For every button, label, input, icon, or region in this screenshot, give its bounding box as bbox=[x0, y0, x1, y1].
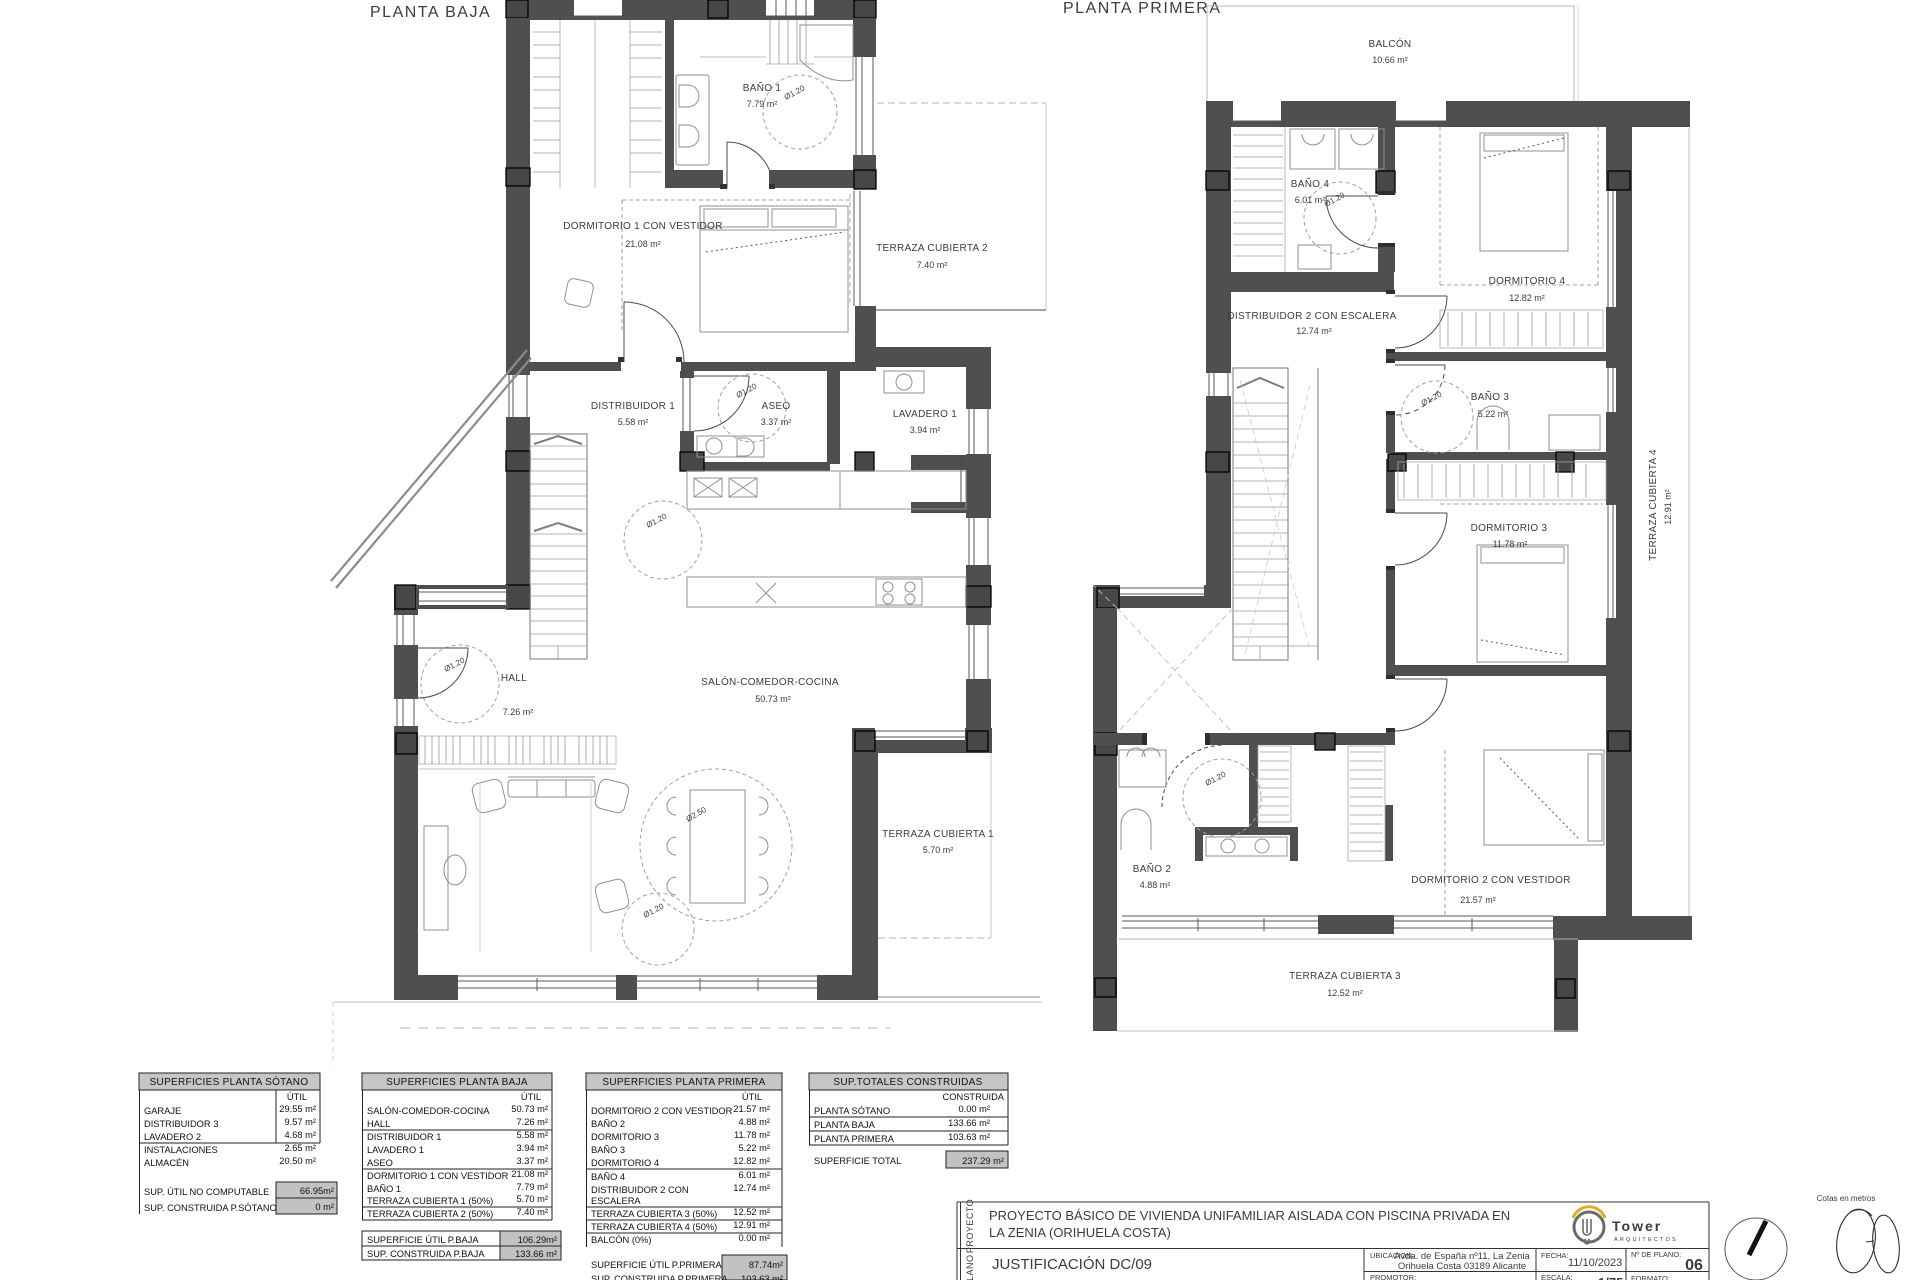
svg-text:LAVADERO 2: LAVADERO 2 bbox=[144, 1132, 201, 1142]
svg-text:21.57 m²: 21.57 m² bbox=[1460, 895, 1496, 905]
svg-text:TERRAZA CUBIERTA 2 (50%): TERRAZA CUBIERTA 2 (50%) bbox=[367, 1209, 493, 1219]
svg-text:Cotas en metros: Cotas en metros bbox=[1817, 1194, 1876, 1203]
svg-text:SUP. CONSTRUIDA P.PRIMERA: SUP. CONSTRUIDA P.PRIMERA bbox=[591, 1274, 728, 1280]
svg-text:1/75: 1/75 bbox=[1598, 1275, 1623, 1280]
svg-text:CONSTRUIDA: CONSTRUIDA bbox=[943, 1092, 1005, 1102]
svg-text:50.73 m²: 50.73 m² bbox=[755, 694, 791, 704]
svg-text:237.29 m²: 237.29 m² bbox=[962, 1156, 1004, 1166]
svg-text:5.58 m²: 5.58 m² bbox=[516, 1130, 548, 1140]
svg-text:BAÑO 2: BAÑO 2 bbox=[1133, 862, 1172, 875]
svg-text:0.00 m²: 0.00 m² bbox=[958, 1104, 990, 1114]
svg-text:21.08 m²: 21.08 m² bbox=[511, 1169, 548, 1179]
svg-text:3.37 m²: 3.37 m² bbox=[761, 417, 792, 427]
svg-text:HALL: HALL bbox=[367, 1119, 390, 1129]
svg-text:66.95m²: 66.95m² bbox=[300, 1186, 334, 1196]
svg-text:TERRAZA CUBIERTA 3: TERRAZA CUBIERTA 3 bbox=[1289, 971, 1401, 982]
svg-text:BAÑO 2: BAÑO 2 bbox=[591, 1119, 625, 1129]
svg-text:DORMITORIO 3: DORMITORIO 3 bbox=[1471, 523, 1548, 534]
svg-text:4.68 m²: 4.68 m² bbox=[284, 1130, 316, 1140]
svg-text:DORMITORIO 3: DORMITORIO 3 bbox=[591, 1132, 659, 1142]
svg-text:12.82 m²: 12.82 m² bbox=[1509, 293, 1545, 303]
svg-text:12.74 m²: 12.74 m² bbox=[1296, 326, 1332, 336]
svg-text:DISTRIBUIDOR 2 CON: DISTRIBUIDOR 2 CON bbox=[591, 1185, 689, 1195]
svg-text:INSTALACIONES: INSTALACIONES bbox=[144, 1145, 218, 1155]
svg-text:TERRAZA CUBIERTA 3 (50%): TERRAZA CUBIERTA 3 (50%) bbox=[591, 1209, 717, 1219]
svg-text:106.29m²: 106.29m² bbox=[518, 1235, 557, 1245]
svg-text:103.63 m²: 103.63 m² bbox=[948, 1132, 990, 1142]
svg-text:PLANO: PLANO bbox=[965, 1254, 975, 1280]
svg-text:ARQUITECTOS: ARQUITECTOS bbox=[1614, 1237, 1678, 1243]
svg-text:SUPERFICIES PLANTA PRIMERA: SUPERFICIES PLANTA PRIMERA bbox=[602, 1077, 765, 1088]
svg-text:PLANTA PRIMERA: PLANTA PRIMERA bbox=[814, 1134, 895, 1144]
svg-text:BAÑO 1: BAÑO 1 bbox=[743, 81, 782, 94]
svg-text:BAÑO 1: BAÑO 1 bbox=[367, 1184, 401, 1194]
svg-text:12.74 m²: 12.74 m² bbox=[733, 1183, 770, 1193]
svg-text:3.37 m²: 3.37 m² bbox=[516, 1156, 548, 1166]
svg-text:12.52 m²: 12.52 m² bbox=[1327, 988, 1363, 998]
svg-text:FORMATO:: FORMATO: bbox=[1631, 1274, 1670, 1280]
svg-text:DORMITORIO 1 CON VESTIDOR: DORMITORIO 1 CON VESTIDOR bbox=[563, 221, 723, 232]
svg-text:ÚTIL: ÚTIL bbox=[287, 1092, 307, 1102]
svg-text:BALCÓN (0%): BALCÓN (0%) bbox=[591, 1235, 651, 1245]
svg-text:BAÑO 4: BAÑO 4 bbox=[1291, 177, 1330, 190]
svg-text:Nº DE PLANO:: Nº DE PLANO: bbox=[1631, 1250, 1681, 1259]
svg-text:3.94 m²: 3.94 m² bbox=[910, 425, 941, 435]
svg-text:GARAJE: GARAJE bbox=[144, 1106, 181, 1116]
svg-text:ESCALA:: ESCALA: bbox=[1541, 1273, 1573, 1280]
svg-text:SUPERFICIES PLANTA BAJA: SUPERFICIES PLANTA BAJA bbox=[386, 1077, 528, 1088]
svg-text:0 m²: 0 m² bbox=[315, 1202, 334, 1212]
svg-text:TERRAZA CUBIERTA 1: TERRAZA CUBIERTA 1 bbox=[882, 829, 994, 840]
svg-text:11/10/2023: 11/10/2023 bbox=[1568, 1257, 1622, 1269]
svg-text:JUSTIFICACIÓN DC/09: JUSTIFICACIÓN DC/09 bbox=[992, 1256, 1152, 1273]
svg-text:103.63 m²: 103.63 m² bbox=[741, 1274, 783, 1280]
svg-text:HALL: HALL bbox=[501, 673, 527, 684]
svg-text:12.91 m²: 12.91 m² bbox=[1663, 489, 1673, 525]
svg-text:Orihuela Costa 03189 Alicante: Orihuela Costa 03189 Alicante bbox=[1398, 1261, 1526, 1272]
svg-text:29.55 m²: 29.55 m² bbox=[279, 1104, 316, 1114]
svg-text:133.66 m²: 133.66 m² bbox=[515, 1249, 557, 1259]
svg-text:21.08 m²: 21.08 m² bbox=[625, 239, 661, 249]
svg-text:21.57 m²: 21.57 m² bbox=[733, 1104, 770, 1114]
svg-text:5.70 m²: 5.70 m² bbox=[923, 845, 954, 855]
svg-text:7.79 m²: 7.79 m² bbox=[516, 1182, 548, 1192]
svg-text:SALÓN-COMEDOR-COCINA: SALÓN-COMEDOR-COCINA bbox=[367, 1106, 490, 1116]
svg-text:ASEO: ASEO bbox=[762, 401, 791, 412]
svg-text:BAÑO 4: BAÑO 4 bbox=[591, 1172, 625, 1182]
svg-text:DISTRIBUIDOR 2 CON ESCALERA: DISTRIBUIDOR 2 CON ESCALERA bbox=[1227, 311, 1396, 322]
svg-text:PLANTA BAJA: PLANTA BAJA bbox=[814, 1120, 876, 1130]
svg-text:ESCALERA: ESCALERA bbox=[591, 1196, 641, 1206]
svg-text:133.66 m²: 133.66 m² bbox=[948, 1118, 990, 1128]
svg-text:12.52 m²: 12.52 m² bbox=[733, 1207, 770, 1217]
svg-text:BAÑO 3: BAÑO 3 bbox=[591, 1145, 625, 1155]
svg-text:SUP. ÚTIL NO COMPUTABLE: SUP. ÚTIL NO COMPUTABLE bbox=[144, 1187, 269, 1197]
svg-text:3.94 m²: 3.94 m² bbox=[516, 1143, 548, 1153]
svg-text:PROYECTO: PROYECTO bbox=[965, 1199, 975, 1253]
svg-text:11.78 m²: 11.78 m² bbox=[1493, 539, 1528, 549]
svg-text:ASEO: ASEO bbox=[367, 1158, 393, 1168]
svg-text:DORMITORIO 2 CON VESTIDOR: DORMITORIO 2 CON VESTIDOR bbox=[591, 1106, 733, 1116]
svg-text:7.40 m²: 7.40 m² bbox=[516, 1207, 548, 1217]
svg-text:PLANTA SÓTANO: PLANTA SÓTANO bbox=[814, 1106, 890, 1116]
svg-text:7.40 m²: 7.40 m² bbox=[917, 260, 948, 270]
svg-text:7.26 m²: 7.26 m² bbox=[516, 1117, 548, 1127]
svg-text:BAÑO 3: BAÑO 3 bbox=[1471, 390, 1510, 403]
svg-text:PLANTA BAJA: PLANTA BAJA bbox=[370, 4, 491, 21]
svg-text:12.91 m²: 12.91 m² bbox=[733, 1220, 770, 1230]
svg-text:5.70 m²: 5.70 m² bbox=[516, 1194, 548, 1204]
svg-text:4.88 m²: 4.88 m² bbox=[1140, 880, 1171, 890]
svg-text:4.88 m²: 4.88 m² bbox=[738, 1117, 770, 1127]
svg-text:SUP. CONSTRUIDA P.SÓTANO: SUP. CONSTRUIDA P.SÓTANO bbox=[144, 1203, 277, 1213]
svg-text:DISTRIBUIDOR 1: DISTRIBUIDOR 1 bbox=[367, 1132, 441, 1142]
svg-text:20.50 m²: 20.50 m² bbox=[279, 1156, 316, 1166]
svg-text:SUPERFICIE ÚTIL P.BAJA: SUPERFICIE ÚTIL P.BAJA bbox=[367, 1235, 479, 1245]
svg-text:9.57 m²: 9.57 m² bbox=[284, 1117, 316, 1127]
svg-text:6.01 m²: 6.01 m² bbox=[738, 1170, 770, 1180]
svg-text:2.65 m²: 2.65 m² bbox=[284, 1143, 316, 1153]
svg-text:TERRAZA CUBIERTA 4 (50%): TERRAZA CUBIERTA 4 (50%) bbox=[591, 1222, 717, 1232]
svg-text:DISTRIBUIDOR 1: DISTRIBUIDOR 1 bbox=[591, 401, 675, 412]
svg-text:10.66 m²: 10.66 m² bbox=[1372, 55, 1408, 65]
svg-text:TERRAZA CUBIERTA 1 (50%): TERRAZA CUBIERTA 1 (50%) bbox=[367, 1196, 493, 1206]
svg-text:5.22 m²: 5.22 m² bbox=[1478, 409, 1509, 419]
svg-text:5.58 m²: 5.58 m² bbox=[618, 417, 649, 427]
svg-text:DISTRIBUIDOR 3: DISTRIBUIDOR 3 bbox=[144, 1119, 218, 1129]
svg-text:ALMACÉN: ALMACÉN bbox=[144, 1158, 189, 1168]
svg-text:PROMOTOR:: PROMOTOR: bbox=[1370, 1273, 1416, 1280]
svg-text:SUP. CONSTRUIDA P.BAJA: SUP. CONSTRUIDA P.BAJA bbox=[367, 1249, 485, 1259]
svg-text:LAVADERO 1: LAVADERO 1 bbox=[893, 409, 957, 420]
svg-text:BALCÓN: BALCÓN bbox=[1369, 37, 1412, 50]
svg-text:PLANTA PRIMERA: PLANTA PRIMERA bbox=[1063, 0, 1222, 17]
svg-text:DORMITORIO 4: DORMITORIO 4 bbox=[591, 1158, 659, 1168]
svg-text:SUPERFICIE ÚTIL P.PRIMERA: SUPERFICIE ÚTIL P.PRIMERA bbox=[591, 1260, 722, 1270]
svg-text:11.78 m²: 11.78 m² bbox=[734, 1130, 770, 1140]
svg-text:Tower: Tower bbox=[1612, 1218, 1662, 1234]
svg-text:TERRAZA CUBIERTA 4: TERRAZA CUBIERTA 4 bbox=[1648, 449, 1659, 561]
svg-text:7.79 m²: 7.79 m² bbox=[747, 99, 778, 109]
svg-text:SALÓN-COMEDOR-COCINA: SALÓN-COMEDOR-COCINA bbox=[701, 675, 839, 688]
svg-text:ÚTIL: ÚTIL bbox=[742, 1092, 762, 1102]
svg-text:DORMITORIO 2 CON VESTIDOR: DORMITORIO 2 CON VESTIDOR bbox=[1411, 875, 1571, 886]
svg-text:TERRAZA CUBIERTA 2: TERRAZA CUBIERTA 2 bbox=[876, 243, 988, 254]
svg-text:6.01 m²: 6.01 m² bbox=[1295, 195, 1326, 205]
svg-text:06: 06 bbox=[1685, 1257, 1703, 1274]
svg-text:FECHA:: FECHA: bbox=[1541, 1251, 1569, 1260]
svg-text:PROYECTO BÁSICO DE VIVIENDA UN: PROYECTO BÁSICO DE VIVIENDA UNIFAMILIAR … bbox=[989, 1208, 1510, 1223]
svg-text:SUP.TOTALES CONSTRUIDAS: SUP.TOTALES CONSTRUIDAS bbox=[833, 1077, 982, 1088]
svg-text:ÚTIL: ÚTIL bbox=[521, 1092, 541, 1102]
svg-text:SUPERFICIE TOTAL: SUPERFICIE TOTAL bbox=[814, 1156, 901, 1166]
svg-text:5.22 m²: 5.22 m² bbox=[738, 1143, 770, 1153]
svg-text:LA ZENIA (ORIHUELA COSTA): LA ZENIA (ORIHUELA COSTA) bbox=[989, 1225, 1171, 1240]
svg-text:12.82 m²: 12.82 m² bbox=[733, 1156, 770, 1166]
svg-text:7.26 m²: 7.26 m² bbox=[503, 707, 534, 717]
svg-text:LAVADERO 1: LAVADERO 1 bbox=[367, 1145, 424, 1155]
svg-text:50.73 m²: 50.73 m² bbox=[511, 1104, 548, 1114]
svg-text:0.00 m²: 0.00 m² bbox=[738, 1233, 770, 1243]
svg-text:87.74m²: 87.74m² bbox=[749, 1260, 783, 1270]
svg-text:SUPERFICIES PLANTA SÓTANO: SUPERFICIES PLANTA SÓTANO bbox=[150, 1075, 309, 1088]
svg-text:DORMITORIO 1 CON VESTIDOR: DORMITORIO 1 CON VESTIDOR bbox=[367, 1171, 509, 1181]
svg-text:DORMITORIO 4: DORMITORIO 4 bbox=[1489, 276, 1566, 287]
